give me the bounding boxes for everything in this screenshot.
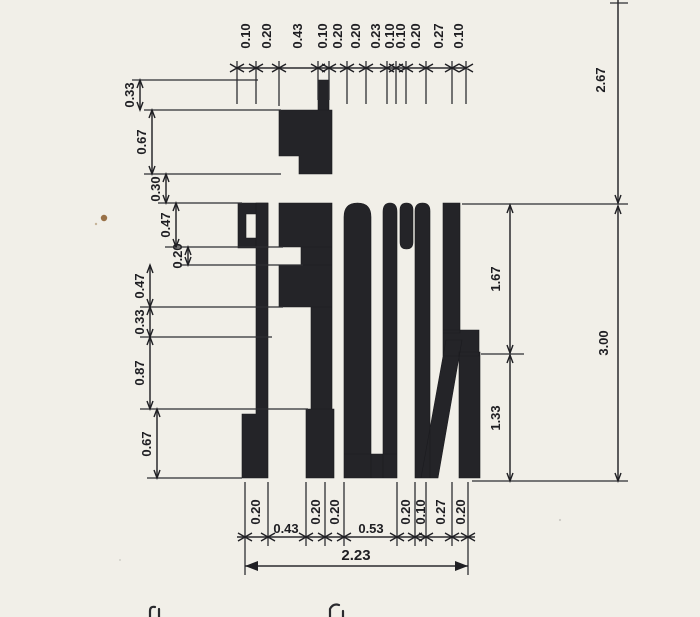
dim-label: 0.20 [308, 499, 323, 524]
dim-label: 3.00 [596, 330, 611, 355]
dim-label: 0.20 [259, 23, 274, 48]
dim-label: 0.47 [158, 212, 173, 237]
dim-label: 0.23 [368, 23, 383, 48]
dim-label: 2.67 [593, 67, 608, 92]
technical-drawing: 0.10 0.20 0.43 0.10 0.20 0.20 0.23 0.10 … [0, 0, 700, 617]
paper-speck [559, 519, 561, 521]
dim-label: 0.20 [170, 243, 185, 268]
dim-label: 0.33 [132, 309, 147, 334]
dim-label: 0.10 [238, 23, 253, 48]
dim-label: 0.10 [451, 23, 466, 48]
dim-label: 0.47 [132, 273, 147, 298]
dim-label: 1.33 [488, 405, 503, 430]
dim-label: 0.20 [248, 499, 263, 524]
dim-label: 0.10 [393, 23, 408, 48]
glyph-yo-yak [344, 203, 397, 478]
paper-speck [95, 223, 97, 225]
dim-label: 0.33 [122, 82, 137, 107]
dim-label: 0.10 [413, 499, 428, 524]
dim-label: 0.87 [132, 360, 147, 385]
dim-label: 0.53 [358, 521, 383, 536]
dim-label: 0.20 [408, 23, 423, 48]
dim-label: 0.67 [134, 129, 149, 154]
scanned-drawing-sheet: 0.10 0.20 0.43 0.10 0.20 0.20 0.23 0.10 … [0, 0, 700, 617]
dim-label: 0.43 [290, 23, 305, 48]
dim-label-total: 2.23 [341, 547, 370, 564]
paper-fleck [101, 215, 107, 221]
paper-speck [119, 559, 121, 561]
dim-label: 0.27 [433, 499, 448, 524]
dim-label: 0.67 [139, 431, 154, 456]
dim-label: 0.20 [453, 499, 468, 524]
dim-label: 1.67 [488, 266, 503, 291]
dim-label: 0.20 [330, 23, 345, 48]
dim-label: 0.20 [348, 23, 363, 48]
dim-label: 0.20 [398, 499, 413, 524]
dim-label: 0.43 [273, 521, 298, 536]
dim-label: 0.20 [327, 499, 342, 524]
dim-label: 0.10 [315, 23, 330, 48]
dim-label: 0.30 [148, 176, 163, 201]
dim-label: 0.27 [431, 23, 446, 48]
